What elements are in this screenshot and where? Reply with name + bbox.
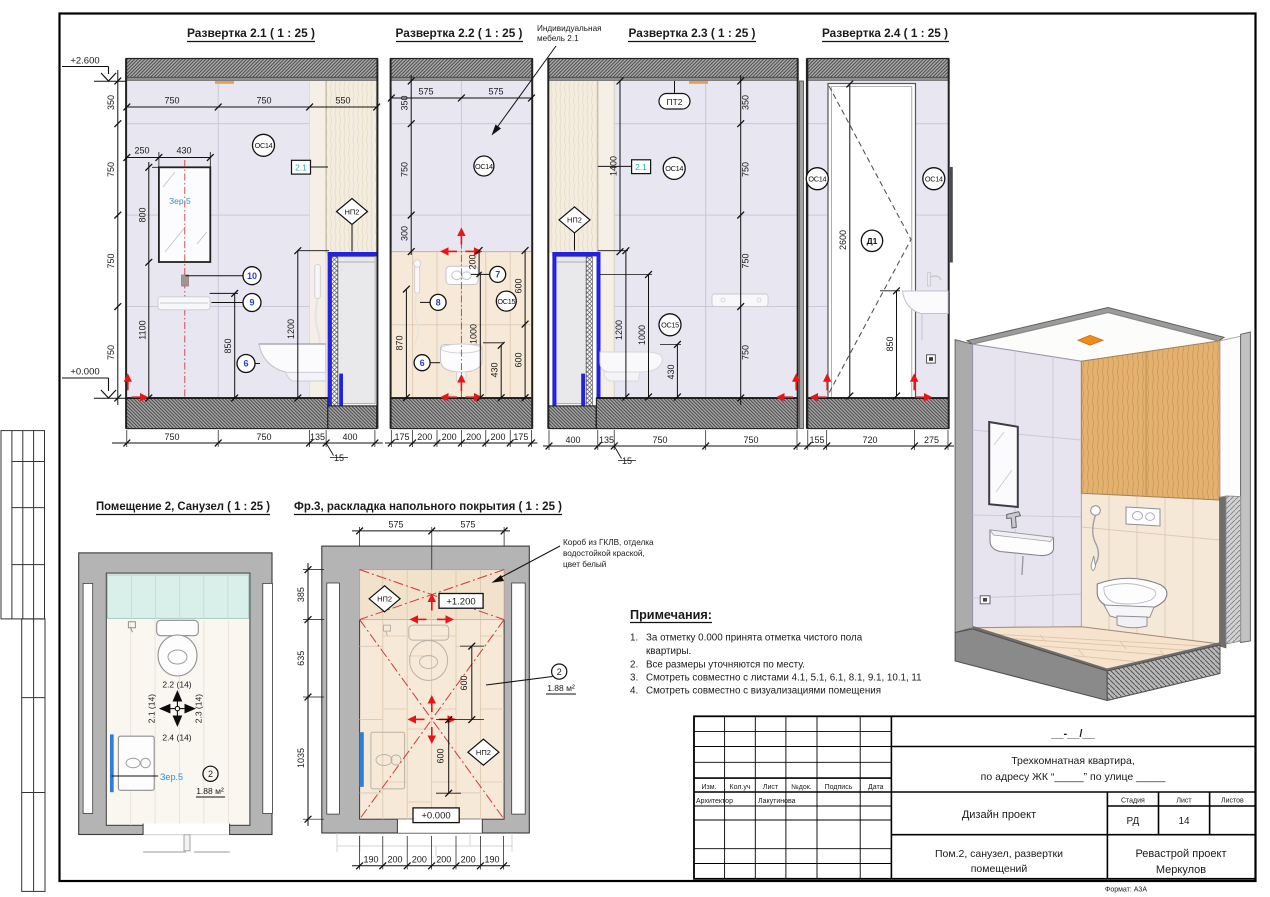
- svg-text:+0.000: +0.000: [421, 811, 450, 822]
- svg-text:250: 250: [134, 146, 149, 156]
- svg-text:200: 200: [436, 854, 451, 864]
- svg-text:НП2: НП2: [345, 207, 360, 216]
- svg-text:1.88 м²: 1.88 м²: [547, 683, 575, 693]
- svg-text:ОС14: ОС14: [665, 164, 683, 173]
- svg-text:430: 430: [666, 364, 676, 379]
- svg-text:__-__/__: __-__/__: [1050, 728, 1095, 740]
- svg-text:275: 275: [924, 435, 939, 445]
- svg-text:750: 750: [256, 432, 271, 442]
- svg-text:135: 135: [599, 435, 614, 445]
- svg-text:Развертка 2.2 ( 1 : 25 ): Развертка 2.2 ( 1 : 25 ): [396, 26, 523, 40]
- svg-text:ОС14: ОС14: [808, 175, 826, 184]
- svg-text:575: 575: [488, 87, 503, 97]
- svg-text:15: 15: [622, 456, 632, 466]
- svg-text:400: 400: [565, 435, 580, 445]
- svg-text:8: 8: [436, 298, 441, 308]
- svg-text:600: 600: [459, 675, 469, 690]
- svg-text:600: 600: [514, 278, 524, 293]
- svg-text:720: 720: [862, 435, 877, 445]
- svg-text:Короб из ГКЛВ, отделка: Короб из ГКЛВ, отделка: [563, 538, 654, 547]
- svg-text:Дата: Дата: [868, 784, 884, 791]
- svg-text:Развертка 2.1 ( 1 : 25 ): Развертка 2.1 ( 1 : 25 ): [187, 26, 315, 40]
- svg-text:водостойкой краской,: водостойкой краской,: [563, 549, 645, 558]
- svg-text:Развертка 2.3 ( 1 : 25 ): Развертка 2.3 ( 1 : 25 ): [629, 26, 756, 40]
- svg-text:1000: 1000: [469, 324, 479, 344]
- svg-text:ПТ2: ПТ2: [666, 97, 682, 107]
- svg-text:квартиры.: квартиры.: [646, 646, 691, 657]
- svg-text:мебель 2.1: мебель 2.1: [537, 34, 579, 43]
- svg-text:Помещение 2, Санузел ( 1 : 25: Помещение 2, Санузел ( 1 : 25 ): [96, 499, 270, 513]
- svg-text:Лакутинова: Лакутинова: [758, 798, 796, 805]
- svg-text:575: 575: [460, 520, 475, 530]
- svg-text:+2.600: +2.600: [70, 56, 99, 67]
- svg-text:200: 200: [468, 254, 478, 269]
- svg-text:190: 190: [484, 854, 499, 864]
- svg-text:по адресу ЖК “_____” по улице: по адресу ЖК “_____” по улице _____: [981, 771, 1166, 783]
- svg-text:2.: 2.: [630, 660, 638, 671]
- svg-text:Все размеры уточняются по мест: Все размеры уточняются по месту.: [646, 660, 805, 671]
- svg-text:НП2: НП2: [476, 748, 491, 757]
- svg-text:Листов: Листов: [1221, 798, 1244, 805]
- svg-text:Индивидуальная: Индивидуальная: [537, 24, 602, 33]
- svg-text:750: 750: [741, 162, 751, 177]
- svg-text:1.88 м²: 1.88 м²: [196, 786, 224, 796]
- svg-text:9: 9: [249, 298, 254, 308]
- svg-text:4.: 4.: [630, 686, 638, 697]
- svg-text:№док.: №док.: [791, 784, 812, 791]
- svg-text:2600: 2600: [838, 230, 848, 250]
- svg-text:7: 7: [495, 270, 500, 280]
- svg-text:За отметку 0.000 принята отмет: За отметку 0.000 принята отметка чистого…: [646, 633, 863, 644]
- svg-text:1400: 1400: [609, 156, 619, 176]
- svg-text:Дизайн проект: Дизайн проект: [962, 809, 1036, 821]
- svg-text:+1.200: +1.200: [446, 596, 475, 607]
- svg-text:1200: 1200: [614, 320, 624, 340]
- svg-text:Развертка 2.4 ( 1 : 25 ): Развертка 2.4 ( 1 : 25 ): [822, 26, 948, 40]
- svg-text:ОС15: ОС15: [661, 321, 679, 330]
- svg-text:750: 750: [652, 435, 667, 445]
- svg-text:800: 800: [138, 207, 148, 222]
- svg-text:Смотреть совместно с визуализа: Смотреть совместно с визуализациями поме…: [646, 686, 881, 697]
- svg-text:Трехкомнатная квартира,: Трехкомнатная квартира,: [1011, 755, 1135, 767]
- svg-text:1100: 1100: [138, 320, 148, 339]
- svg-text:750: 750: [164, 96, 179, 106]
- svg-text:870: 870: [395, 335, 405, 350]
- svg-text:Фр.3, раскладка напольного пок: Фр.3, раскладка напольного покрытия ( 1 …: [294, 499, 562, 513]
- svg-text:750: 750: [106, 162, 116, 177]
- svg-text:2: 2: [208, 769, 213, 779]
- svg-text:155: 155: [809, 435, 824, 445]
- svg-text:РД: РД: [1127, 816, 1140, 827]
- svg-text:Д1: Д1: [867, 236, 878, 246]
- svg-text:Лист: Лист: [1176, 798, 1192, 805]
- svg-text:6: 6: [243, 359, 248, 369]
- svg-text:помещений: помещений: [971, 863, 1028, 875]
- svg-text:750: 750: [106, 253, 116, 268]
- svg-text:3.: 3.: [630, 673, 638, 684]
- svg-text:НП2: НП2: [377, 595, 392, 604]
- svg-text:600: 600: [514, 352, 524, 367]
- svg-text:200: 200: [490, 432, 505, 442]
- svg-text:750: 750: [743, 435, 758, 445]
- svg-text:200: 200: [442, 432, 457, 442]
- svg-text:350: 350: [106, 95, 116, 110]
- svg-text:2.2 (14): 2.2 (14): [162, 679, 191, 689]
- svg-text:200: 200: [417, 432, 432, 442]
- svg-text:1.: 1.: [630, 633, 638, 644]
- svg-text:175: 175: [513, 432, 528, 442]
- svg-text:10: 10: [247, 271, 257, 281]
- svg-text:2.4 (14): 2.4 (14): [162, 732, 191, 742]
- svg-text:ОС15: ОС15: [497, 297, 515, 306]
- svg-text:200: 200: [461, 854, 476, 864]
- svg-text:635: 635: [296, 651, 306, 666]
- svg-text:2: 2: [557, 667, 562, 677]
- svg-text:Кол.уч: Кол.уч: [730, 784, 751, 791]
- svg-text:200: 200: [412, 854, 427, 864]
- svg-text:ОС14: ОС14: [255, 141, 273, 150]
- svg-text:2.1: 2.1: [635, 162, 647, 172]
- svg-text:385: 385: [296, 587, 306, 602]
- svg-text:550: 550: [335, 96, 350, 106]
- svg-text:135: 135: [310, 432, 325, 442]
- svg-text:300: 300: [400, 226, 410, 241]
- svg-text:Ревастрой проект: Ревастрой проект: [1135, 848, 1226, 860]
- svg-text:850: 850: [223, 338, 233, 353]
- svg-text:2.1 (14): 2.1 (14): [147, 694, 157, 723]
- svg-text:Изм.: Изм.: [702, 784, 717, 791]
- svg-text:14: 14: [1178, 816, 1190, 827]
- svg-text:430: 430: [176, 146, 191, 156]
- svg-text:190: 190: [363, 854, 378, 864]
- svg-text:750: 750: [741, 253, 751, 268]
- svg-text:Подпись: Подпись: [825, 784, 853, 791]
- svg-text:Лист: Лист: [763, 784, 779, 791]
- svg-text:Примечания:: Примечания:: [630, 607, 712, 622]
- svg-text:350: 350: [400, 95, 410, 110]
- svg-text:200: 200: [466, 432, 481, 442]
- svg-text:850: 850: [885, 336, 895, 351]
- svg-text:200: 200: [387, 854, 402, 864]
- svg-text:1000: 1000: [637, 325, 647, 345]
- svg-text:350: 350: [741, 95, 751, 110]
- svg-text:2.1: 2.1: [295, 162, 307, 172]
- svg-text:750: 750: [741, 345, 751, 360]
- svg-text:Стадия: Стадия: [1121, 798, 1145, 805]
- svg-text:400: 400: [342, 432, 357, 442]
- svg-text:ОС14: ОС14: [475, 162, 493, 171]
- svg-text:750: 750: [256, 96, 271, 106]
- svg-text:750: 750: [400, 162, 410, 177]
- svg-text:ОС14: ОС14: [925, 175, 943, 184]
- svg-text:Формат: А3А: Формат: А3А: [1105, 887, 1147, 894]
- svg-text:Архитектор: Архитектор: [696, 798, 733, 805]
- svg-text:1200: 1200: [286, 319, 296, 339]
- svg-text:1035: 1035: [296, 748, 306, 768]
- svg-text:575: 575: [418, 87, 433, 97]
- svg-text:Пом.2, санузел, развертки: Пом.2, санузел, развертки: [935, 848, 1063, 860]
- svg-text:Меркулов: Меркулов: [1156, 864, 1206, 876]
- svg-text:750: 750: [164, 432, 179, 442]
- svg-text:+0.000: +0.000: [70, 367, 99, 378]
- svg-text:Смотреть совместно с листами 4: Смотреть совместно с листами 4.1, 5.1, 6…: [646, 673, 922, 684]
- svg-text:430: 430: [490, 362, 500, 377]
- svg-text:6: 6: [420, 358, 425, 368]
- svg-text:15: 15: [334, 453, 344, 463]
- svg-text:Зер.5: Зер.5: [169, 196, 191, 206]
- svg-text:Зер.5: Зер.5: [160, 772, 183, 782]
- svg-text:750: 750: [106, 345, 116, 360]
- svg-text:575: 575: [388, 520, 403, 530]
- svg-text:175: 175: [394, 432, 409, 442]
- svg-text:600: 600: [436, 748, 446, 763]
- svg-text:2.3 (14): 2.3 (14): [194, 694, 204, 723]
- svg-text:цвет белый: цвет белый: [563, 560, 606, 569]
- svg-text:НП2: НП2: [567, 216, 582, 225]
